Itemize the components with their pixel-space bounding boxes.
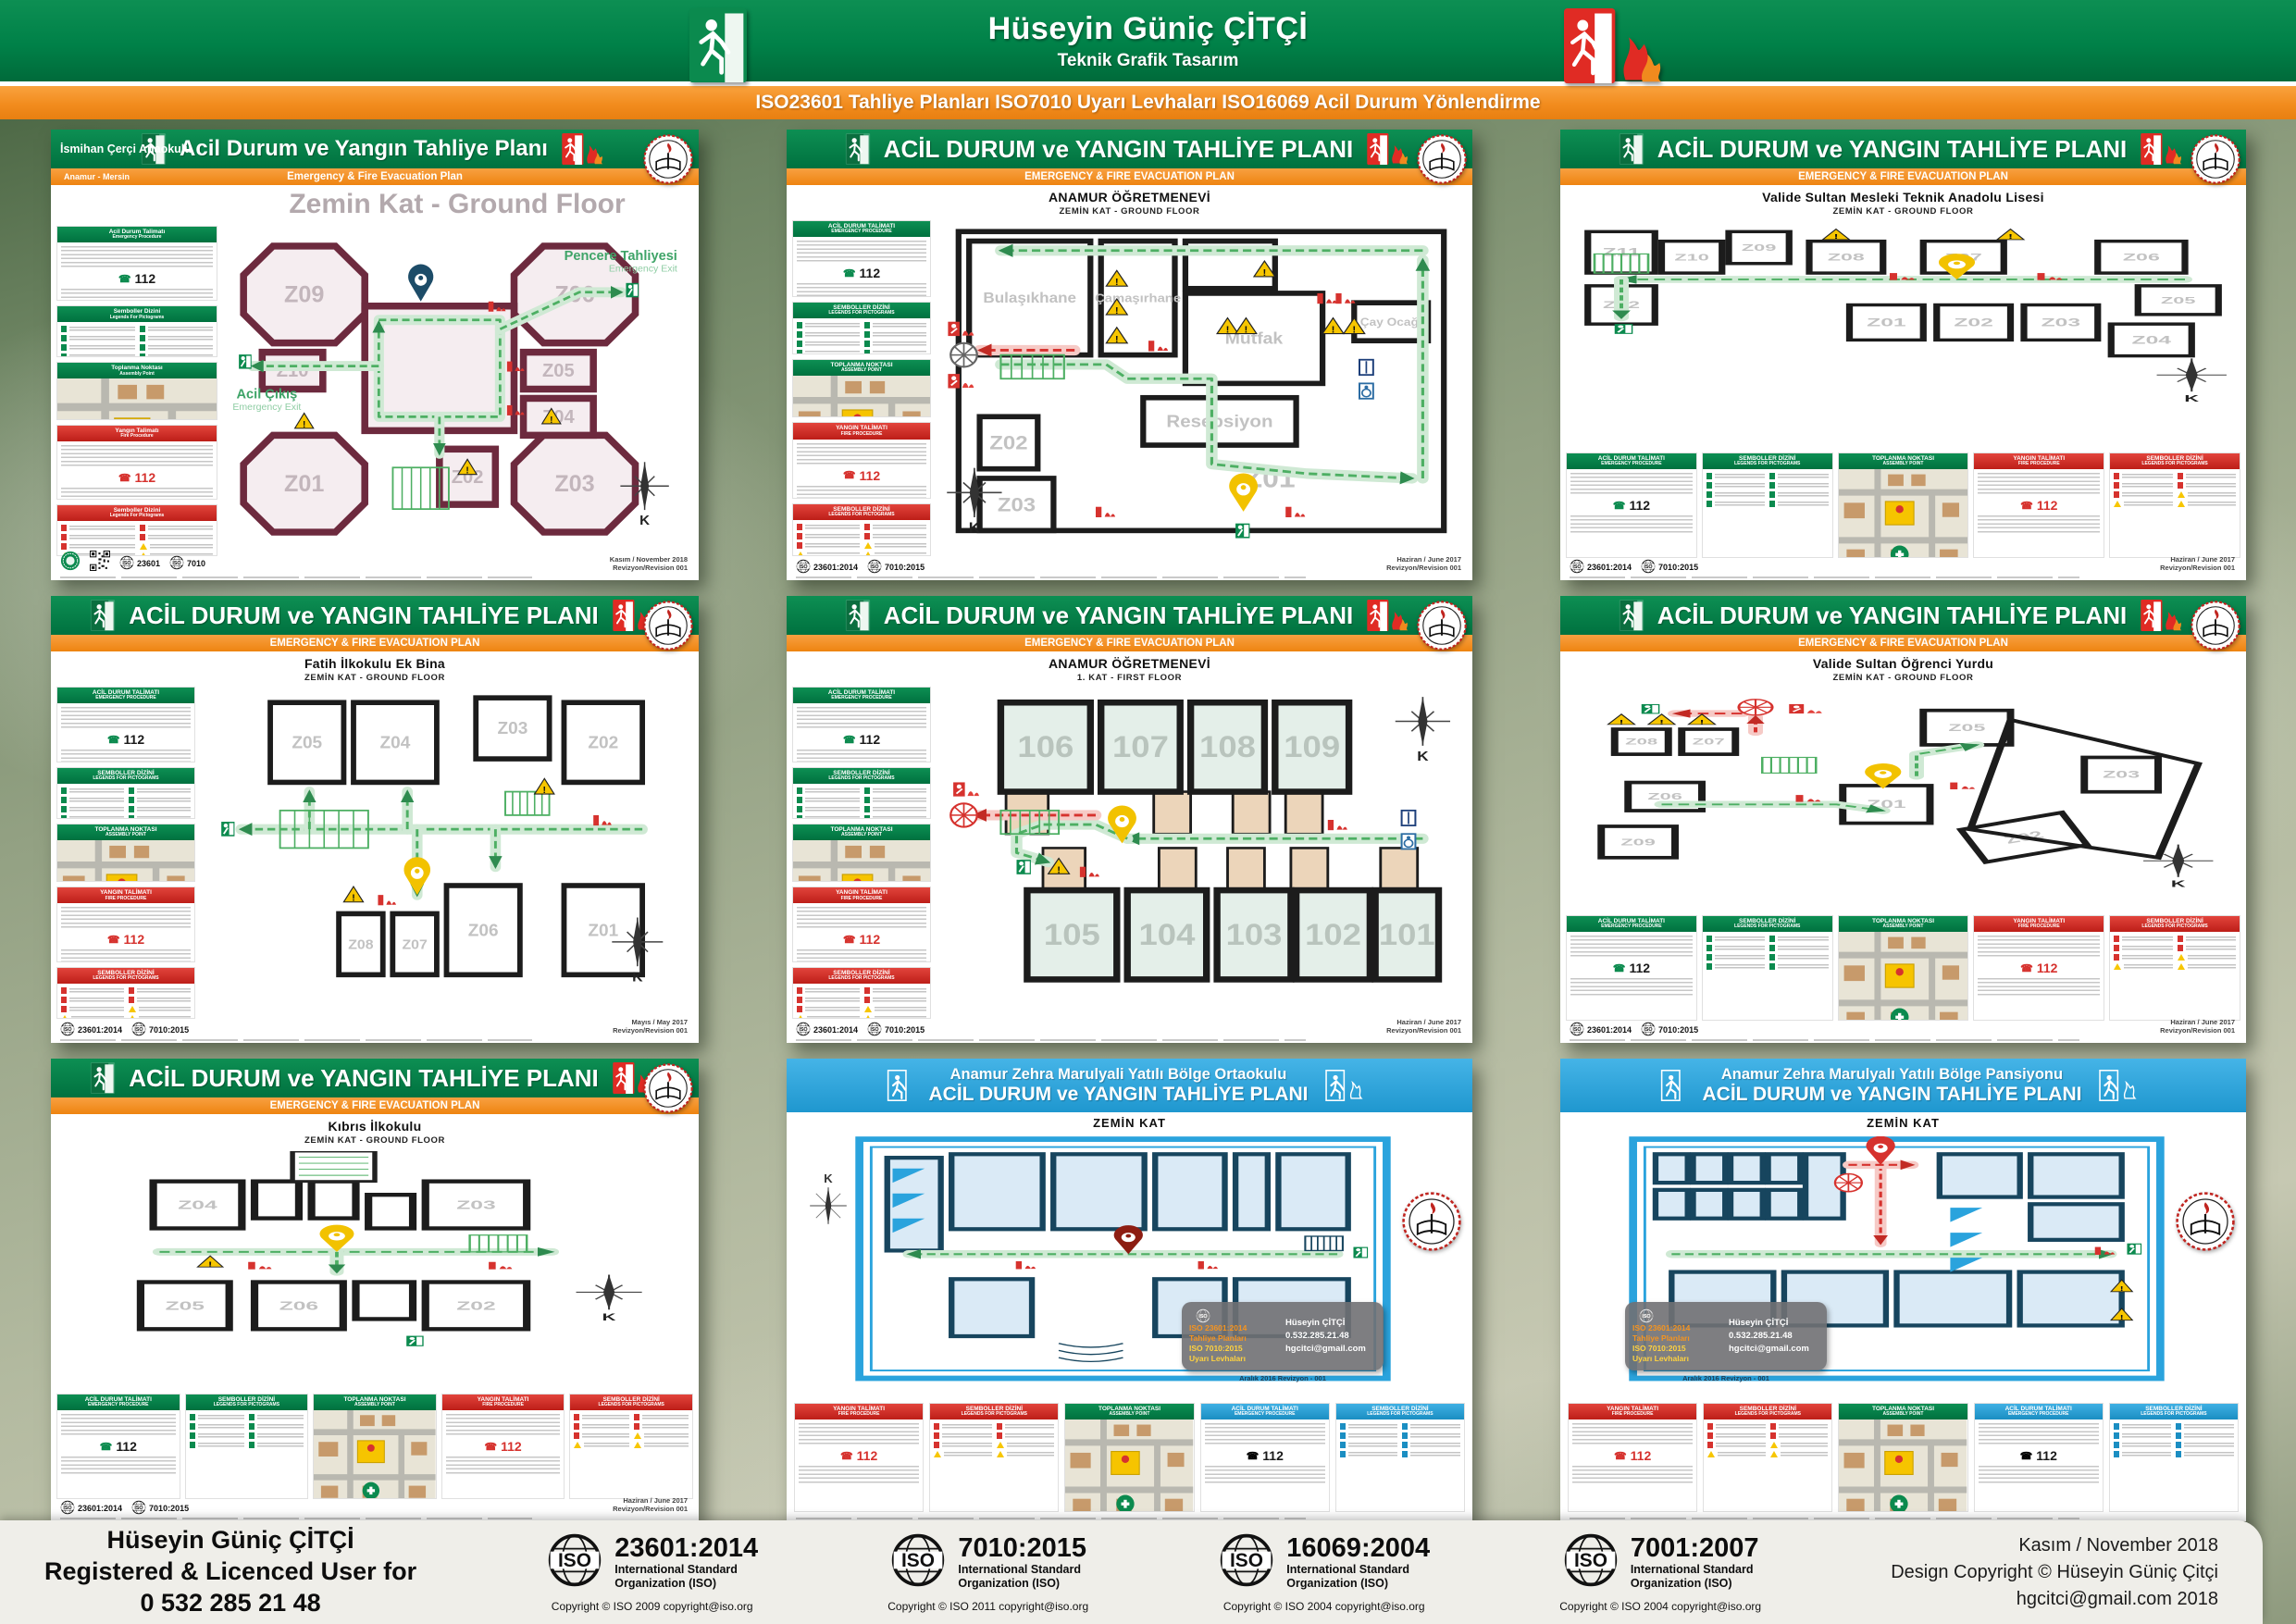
circle-decor	[895, 1075, 900, 1080]
ministry-logo	[1402, 1192, 1461, 1251]
poster-body: Zemin Kat - Ground Floor Acil Durum Tali…	[51, 185, 699, 580]
pictogram-item	[864, 341, 927, 347]
text-decor: Z08	[1625, 738, 1657, 747]
legend-box-sem-red: SEMBOLLER DİZİNİLEGENDS FOR PICTOGRAMS	[792, 503, 931, 556]
rect-decor	[1335, 293, 1341, 304]
contact-card: ISOISO 23601:2014Tahliye PlanlarıISO 701…	[1625, 1302, 1827, 1382]
text-decor: ISO	[558, 1550, 591, 1571]
text-decor: Z02	[456, 1299, 495, 1313]
pictogram-swatch	[61, 525, 67, 531]
rect-decor	[870, 381, 885, 393]
text-decor: !	[1834, 234, 1839, 241]
pictogram-swatch	[1706, 491, 1712, 498]
procedure-text-lines	[61, 907, 191, 929]
iso-mark: ISO7010:2015	[867, 1022, 925, 1038]
pictogram-list	[797, 322, 926, 354]
legend-box-content	[1336, 1419, 1464, 1511]
text-decor: Z03	[2042, 317, 2081, 329]
pictogram-item	[129, 787, 192, 794]
floor-plan: Z05Z04Z03Z02Z08Z07Z06Z01!!K	[202, 688, 691, 1017]
text-decor: !	[550, 415, 552, 426]
text-decor: !	[2120, 1314, 2124, 1322]
legend-box-title: TOPLANMA NOKTASIASSEMBLY POINT	[57, 824, 194, 840]
rect-decor	[1769, 1154, 1801, 1183]
pictogram-label-lines	[69, 788, 124, 793]
pictogram-item	[574, 1432, 628, 1439]
procedure-text-lines	[1978, 978, 2100, 997]
iso-badge: ISO 7010:2015 International Standard Org…	[887, 1531, 1088, 1613]
iso-code: 7010:2015	[1658, 563, 1698, 572]
text-decor: 104	[1139, 919, 1197, 952]
pictogram-item	[2178, 945, 2236, 951]
pictogram-item	[864, 350, 927, 354]
iso-mark: ISO7010:2015	[131, 1500, 189, 1517]
pictogram-swatch	[797, 533, 802, 539]
rect-decor	[1362, 1248, 1367, 1258]
pictogram-item	[2114, 491, 2172, 498]
iso-logo: ISO	[169, 555, 184, 572]
pictogram-swatch	[2176, 1451, 2181, 1457]
pictogram-label-lines	[2122, 1424, 2172, 1429]
iso-line-orange: Tahliye Planları	[1189, 1333, 1278, 1344]
legend-box-content: ☎112	[1975, 1419, 2103, 1511]
procedure-text-lines	[61, 289, 213, 301]
legend-box-title-en: Fire Procedure	[60, 434, 214, 440]
pictogram-item	[2178, 482, 2236, 489]
legend-box-acil-blue: ACİL DURUM TALİMATIEMERGENCY PROCEDURE☎1…	[1200, 1403, 1330, 1512]
rect-decor	[1124, 1500, 1127, 1508]
path-decor	[259, 1266, 272, 1269]
legend-box-sem-green: SEMBOLLER DİZİNİLEGENDS FOR PICTOGRAMS	[1702, 915, 1833, 1021]
pictogram-swatch	[1769, 963, 1775, 970]
legend-box-title: SEMBOLLER DİZİNİLEGENDS FOR PICTOGRAMS	[570, 1395, 692, 1410]
floor-plan-drawing: 106107108109105104103102101!K	[937, 688, 1465, 1017]
svg-decor: ISO	[1562, 1531, 1620, 1589]
pictogram-label-lines	[2122, 1443, 2172, 1447]
poster-header: ACİL DURUM ve YANGIN TAHLİYE PLANI	[787, 130, 1472, 168]
rect-decor	[1897, 1272, 2010, 1326]
pictogram-label-lines	[875, 543, 927, 548]
pictogram-swatch	[997, 1432, 1002, 1439]
pictogram-label-lines	[69, 998, 124, 1002]
procedure-text-lines	[446, 1414, 561, 1436]
iso-code: 7010:2015	[1658, 1025, 1698, 1035]
warning-triangle-icon	[997, 1451, 1004, 1457]
procedure-text-lines	[1572, 1466, 1693, 1484]
legend-box-title: YANGIN TALİMATIFIRE PROCEDURE	[793, 887, 930, 903]
iso-banner: ISO23601 Tahliye Planları ISO7010 Uyarı …	[0, 86, 2296, 119]
pictogram-item	[61, 344, 135, 351]
legend-box-title-en: ASSEMBLY POINT	[796, 368, 927, 374]
iso-logo: ISO	[867, 1022, 882, 1038]
text-decor: Z05	[2161, 295, 2195, 306]
pictogram-swatch	[1402, 1423, 1408, 1430]
iso-mark: ISO23601:2014	[1570, 559, 1632, 576]
rect-decor	[115, 418, 150, 420]
iso-logo: ISO	[1218, 1531, 1275, 1593]
circle-decor	[618, 604, 623, 609]
pictogram-label-lines	[198, 1443, 244, 1447]
legend-box-content	[1839, 1419, 1967, 1512]
pictogram-item	[2178, 491, 2236, 498]
pictogram-swatch	[140, 335, 145, 341]
poster-body: ANAMUR ÖĞRETMENEVİ ZEMİN KAT - GROUND FL…	[787, 185, 1472, 580]
emergency-number-row: ☎112	[1205, 1448, 1325, 1463]
circle-decor	[1407, 836, 1410, 839]
pictogram-swatch	[1769, 954, 1775, 961]
rect-decor	[118, 385, 137, 399]
floor-plan-drawing: Z04Z03Z05Z06Z02!K	[58, 1151, 691, 1386]
path-decor	[1807, 799, 1821, 801]
pictogram-item	[997, 1432, 1055, 1439]
legend-box-title-en: Assembly Point	[60, 372, 214, 378]
pictogram-item	[140, 534, 214, 540]
pictogram-item	[574, 1414, 628, 1420]
svg-decor: ISO	[867, 1022, 882, 1036]
pictogram-label-lines	[139, 1016, 192, 1019]
iso-org-line1: International Standard	[1286, 1563, 1430, 1577]
pictogram-item	[2114, 945, 2172, 951]
iso-copyright: Copyright © ISO 2009 copyright@iso.org	[552, 1600, 753, 1613]
procedure-text-lines	[1979, 1466, 2099, 1484]
legend-box-title: SEMBOLLER DİZİNİLEGENDS FOR PICTOGRAMS	[793, 504, 930, 520]
rect-decor	[102, 565, 105, 567]
legend-box-content: ☎112	[442, 1410, 565, 1498]
warning-triangle-icon	[574, 1442, 581, 1448]
floor-plan-drawing: Z08Z07Z05Z03Z06Z09Z01Z02!!!K	[1568, 688, 2239, 908]
pictogram-label-lines	[2124, 964, 2172, 969]
iso-logo: ISO	[1641, 559, 1656, 576]
iso-logo: ISO	[1189, 1308, 1217, 1323]
pictogram-swatch	[61, 543, 67, 550]
pictogram-swatch	[1340, 1451, 1346, 1457]
text-decor: Emergency Exit	[609, 263, 677, 274]
phone-icon: ☎	[843, 469, 856, 481]
emergency-number-row: ☎112	[446, 1439, 561, 1454]
rect-decor	[1911, 1425, 1925, 1436]
text-decor: ISO	[901, 1550, 935, 1571]
pictogram-item	[140, 353, 214, 357]
legend-box-title-en: LEGENDS FOR PICTOGRAMS	[573, 1403, 689, 1408]
iso-code: 23601:2014	[813, 563, 858, 572]
procedure-text-lines	[797, 907, 926, 929]
rect-decor	[411, 1442, 427, 1455]
pictogram-item	[129, 1015, 192, 1019]
poster-subtitle: EMERGENCY & FIRE EVACUATION PLAN	[270, 638, 480, 649]
poster-subtitle: EMERGENCY & FIRE EVACUATION PLAN	[1798, 638, 2008, 649]
svg-decor	[845, 133, 871, 165]
pictogram-label-lines	[69, 526, 135, 530]
rect-decor	[1244, 525, 1248, 537]
floor-plan-drawing: Z11Z10Z09Z08Z07Z06Z05Z12Z01Z02Z03Z04!!K	[1568, 222, 2239, 445]
pictogram-label-lines	[1715, 946, 1765, 950]
circle-decor	[1125, 1234, 1131, 1238]
revision-line: Revizyon/Revision 001	[613, 1505, 688, 1514]
pictogram-label-lines	[137, 798, 192, 802]
rect-decor	[507, 362, 513, 372]
pictogram-item	[1769, 936, 1828, 942]
pictogram-label-lines	[1778, 483, 1828, 488]
compass-rose: K	[803, 1172, 853, 1226]
iso-badge-top: ISO 7010:2015 International Standard Org…	[889, 1531, 1086, 1593]
pictogram-label-lines	[69, 807, 124, 812]
legend-box-title: SEMBOLLER DİZİNİLEGENDS FOR PICTOGRAMS	[793, 968, 930, 984]
fine-print-line	[60, 576, 532, 578]
legend-box-title: YANGIN TALİMATIFIRE PROCEDURE	[795, 1404, 923, 1419]
text-decor: !	[2008, 234, 2013, 241]
rect-decor	[1278, 1154, 1347, 1229]
g-decor: K	[2143, 845, 2213, 889]
poster-header: ACİL DURUM ve YANGIN TAHLİYE PLANI	[787, 596, 1472, 635]
legend-box-acil-green: ACİL DURUM TALİMATIEMERGENCY PROCEDURE☎1…	[1566, 452, 1697, 558]
floor-title: Zemin Kat - Ground Floor	[227, 189, 688, 220]
pictogram-label-lines	[642, 1415, 689, 1419]
poster-subtitle: EMERGENCY & FIRE EVACUATION PLAN	[1798, 171, 2008, 182]
pictogram-item	[797, 552, 860, 556]
path-decor	[967, 791, 979, 796]
iso-mark: ISO23601:2014	[60, 1022, 122, 1038]
legend-box-content: ☎112	[1569, 1419, 1696, 1511]
legend-box-title-en: FIRE PROCEDURE	[60, 897, 192, 902]
rect-decor	[107, 560, 109, 562]
emergency-number: 112	[1631, 1448, 1652, 1463]
pictogram-item	[1340, 1442, 1398, 1448]
rect-decor	[1846, 550, 1865, 558]
pictogram-swatch	[634, 1423, 639, 1430]
circle-decor	[1793, 705, 1800, 708]
pictogram-label-lines	[1410, 1452, 1460, 1457]
text-decor: !	[1115, 305, 1119, 316]
pictogram-label-lines	[805, 816, 860, 819]
legend-box-yangin-red: YANGIN TALİMATIFIRE PROCEDURE☎112	[792, 886, 931, 962]
pictogram-item	[1770, 1442, 1829, 1448]
pictogram-swatch	[2114, 945, 2119, 951]
text-decor: K	[1417, 749, 1429, 764]
poster-location: Anamur - Mersin	[64, 168, 130, 185]
floor-plan: Z08Z07Z05Z03Z06Z09Z01Z02!!!K	[1568, 688, 2239, 908]
pictogram-item	[797, 787, 860, 794]
pictogram-item	[864, 322, 927, 329]
legend-box-sem-red: SEMBOLLER DİZİNİLEGENDS FOR PICTOGRAMS	[569, 1394, 693, 1499]
legend-row: YANGIN TALİMATIFIRE PROCEDURE☎112SEMBOLL…	[794, 1403, 1465, 1512]
circle-decor	[628, 285, 632, 289]
procedure-text-lines	[1205, 1423, 1325, 1445]
rect-decor	[799, 411, 821, 417]
pictogram-item	[797, 524, 860, 530]
iso-code: 7010:2015	[149, 1025, 189, 1035]
legend-box-title: YANGIN TALİMATIFIRE PROCEDURE	[442, 1395, 565, 1410]
text-decor: ISO	[799, 564, 807, 570]
iso-org-line1: International Standard	[1631, 1563, 1759, 1577]
legend-box-title-en: LEGENDS FOR PICTOGRAMS	[2113, 462, 2237, 467]
circle-decor	[1373, 604, 1378, 609]
rect-decor	[1285, 507, 1291, 517]
revision-block: Haziran / June 2017Revizyon/Revision 001	[2160, 1018, 2235, 1036]
path-decor	[500, 1266, 513, 1269]
svg-decor	[689, 8, 747, 82]
pictogram-swatch	[1770, 1432, 1776, 1439]
pictogram-swatch	[2114, 1432, 2119, 1439]
poster-subtitle-bar: EMERGENCY & FIRE EVACUATION PLAN	[1560, 635, 2246, 651]
circle-decor	[567, 138, 572, 143]
pictogram-item	[140, 335, 214, 341]
procedure-text-lines	[1978, 473, 2100, 495]
pictogram-label-lines	[805, 807, 860, 812]
pictogram-item	[1769, 963, 1828, 970]
floor-plan: BulaşıkhaneÇamaşırhaneMutfakÇay OcağıRes…	[937, 222, 1465, 554]
legend-box-content: ☎112	[793, 903, 930, 961]
exit-man-icon	[1619, 133, 1644, 165]
g-decor: K	[1396, 697, 1450, 764]
poster-title: ACİL DURUM ve YANGIN TAHLİYE PLANI	[884, 601, 1354, 630]
pictogram-label-lines	[69, 327, 135, 331]
pictogram-swatch	[797, 987, 802, 994]
pictogram-item	[249, 1442, 304, 1448]
rect-decor	[98, 552, 100, 554]
iso-code: 7010:2015	[885, 1025, 925, 1035]
legend-box-title-en: EMERGENCY PROCEDURE	[1570, 924, 1694, 930]
path-decor	[2125, 1083, 2135, 1098]
fire-exit-icon	[561, 133, 609, 165]
path-decor	[1089, 873, 1099, 876]
iso-copyright: Copyright © ISO 2004 copyright@iso.org	[1559, 1600, 1761, 1613]
pictogram-label-lines	[69, 336, 135, 341]
pictogram-swatch	[2114, 491, 2119, 498]
text-decor: 102	[1305, 919, 1361, 952]
iso-logo: ISO	[119, 555, 134, 572]
text-decor: ISO	[1198, 1314, 1207, 1320]
iso-code: 7010	[187, 559, 205, 568]
rect-decor	[1888, 475, 1904, 487]
polyline-decor	[1000, 365, 1412, 478]
legend-box-sem-red: SEMBOLLER DİZİNİLEGENDS FOR PICTOGRAMS	[929, 1403, 1059, 1512]
circle-decor	[1019, 862, 1024, 865]
pictogram-swatch	[1769, 482, 1775, 489]
pictogram-swatch	[2176, 1423, 2181, 1430]
pictogram-swatch	[1769, 491, 1775, 498]
emergency-number-row: ☎112	[61, 271, 213, 286]
rect-decor	[1096, 507, 1101, 517]
design-copyright: Design Copyright © Hüseyin Güniç Çitçi	[1891, 1559, 2218, 1586]
pictogram-label-lines	[1716, 1433, 1766, 1438]
legend-box-sem-red: SEMBOLLER DİZİNİLEGENDS FOR PICTOGRAMS	[2109, 452, 2240, 558]
ministry-logo	[643, 134, 693, 184]
legend-box-map-map: TOPLANMA NOKTASIASSEMBLY POINT	[313, 1394, 437, 1499]
iso-marks-row: ISO23601:2014ISO7010:2015	[60, 1022, 189, 1038]
poster-body: ANAMUR ÖĞRETMENEVİ 1. KAT - FIRST FLOOR …	[787, 651, 1472, 1043]
poster-subtitle: EMERGENCY & FIRE EVACUATION PLAN	[270, 1100, 480, 1111]
text-decor: Z06	[279, 1299, 318, 1313]
procedure-text-lines	[1978, 515, 2100, 534]
pictogram-item	[574, 1442, 628, 1448]
pictogram-swatch	[2114, 954, 2119, 961]
pictogram-swatch	[864, 533, 870, 539]
warning-triangle-icon	[864, 542, 872, 549]
poster-zehra-marulyali-ortaokulu: Anamur Zehra Marulyali Yatılı Bölge Orta…	[787, 1059, 1472, 1521]
pictogram-label-lines	[805, 525, 860, 529]
circle-decor	[851, 138, 856, 143]
iso-logo: ISO	[1632, 1308, 1660, 1323]
rect-decor	[1291, 848, 1328, 890]
floor-name: ZEMİN KAT	[1560, 1116, 2246, 1130]
poster-valide-sultan-lisesi: ACİL DURUM ve YANGIN TAHLİYE PLANI EMERG…	[1560, 130, 2246, 580]
emergency-number-row: ☎112	[1570, 961, 1693, 975]
path-decor	[603, 1275, 614, 1310]
iso-code: 23601	[137, 559, 160, 568]
pictogram-item	[634, 1414, 689, 1420]
pictogram-label-lines	[805, 998, 860, 1002]
pictogram-label-lines	[148, 336, 214, 341]
rect-decor	[845, 381, 862, 393]
warning-triangle-icon	[2114, 501, 2121, 507]
legend-box-title-en: LEGENDS FOR PICTOGRAMS	[60, 976, 192, 982]
legend-box-title-en: EMERGENCY PROCEDURE	[1204, 1412, 1326, 1418]
pictogram-label-lines	[2122, 474, 2172, 478]
circle-decor	[1669, 1075, 1673, 1080]
path-decor	[602, 821, 612, 824]
rect-decor	[860, 601, 868, 630]
iso-badge: ISO 7001:2007 International Standard Org…	[1559, 1531, 1761, 1613]
ministry-logo	[2176, 1192, 2235, 1251]
rect-decor	[634, 284, 639, 295]
contact-card-iso: ISOISO 23601:2014Tahliye PlanlarıISO 701…	[1632, 1308, 1721, 1364]
pictogram-swatch	[61, 987, 67, 994]
pictogram-item	[61, 787, 124, 794]
pictogram-label-lines	[805, 341, 860, 346]
pictogram-swatch	[1769, 936, 1775, 942]
pictogram-swatch	[797, 815, 802, 819]
poster-fatih-ilkokulu-ek-bina: ACİL DURUM ve YANGIN TAHLİYE PLANI EMERG…	[51, 596, 699, 1043]
phone-icon: ☎	[1614, 1450, 1627, 1462]
legend-box-yangin-red: YANGIN TALİMATIFIRE PROCEDURE☎112	[1568, 1403, 1697, 1512]
pictogram-swatch	[140, 525, 145, 531]
rect-decor	[902, 876, 920, 882]
text-decor: !	[1659, 719, 1664, 725]
rect-decor	[105, 601, 114, 630]
fire-exit-icon	[1366, 600, 1414, 631]
procedure-text-lines	[61, 949, 191, 961]
legend-box-content	[2110, 1419, 2238, 1511]
legend-box-title-en: ASSEMBLY POINT	[1842, 462, 1966, 467]
pictogram-label-lines	[1781, 1443, 1829, 1447]
rect-decor	[1165, 1499, 1183, 1512]
pictogram-swatch	[61, 344, 67, 351]
legend-box-content	[2110, 932, 2240, 1020]
iso-banner-text: ISO23601 Tahliye Planları ISO7010 Uyarı …	[755, 92, 1540, 114]
pictogram-item	[634, 1423, 689, 1430]
text-decor: Z03	[498, 719, 528, 738]
pictogram-swatch	[140, 353, 145, 357]
iso-code: 7010:2015	[885, 563, 925, 572]
rect-decor	[1148, 341, 1154, 351]
page-title: Hüseyin Güniç ÇİTÇİ	[988, 11, 1309, 47]
legend-box-title: YANGIN TALİMATIFIRE PROCEDURE	[1974, 453, 2104, 469]
ministry-logo	[2191, 134, 2240, 184]
poster-title-block: Anamur Zehra Marulyali Yatılı Bölge Orta…	[929, 1066, 1309, 1106]
legend-box-title: YANGIN TALİMATIFIRE PROCEDURE	[1974, 916, 2104, 932]
svg-decor: ISO	[867, 559, 882, 574]
design-credit-block: Kasım / November 2018 Design Copyright ©…	[1891, 1532, 2218, 1613]
pictogram-item	[1706, 963, 1765, 970]
exit-man-icon	[845, 600, 871, 631]
emergency-number: 112	[116, 1439, 137, 1454]
legend-box-title-en: LEGENDS FOR PICTOGRAMS	[2113, 924, 2237, 930]
pictogram-label-lines	[873, 341, 927, 346]
pictogram-label-lines	[1348, 1443, 1398, 1447]
poster-body: ZEMİN KAT K !! YANGIN TALİMATIFIRE PROCE…	[1560, 1112, 2246, 1521]
pictogram-label-lines	[1778, 946, 1828, 950]
pictogram-label-lines	[139, 1007, 192, 1011]
